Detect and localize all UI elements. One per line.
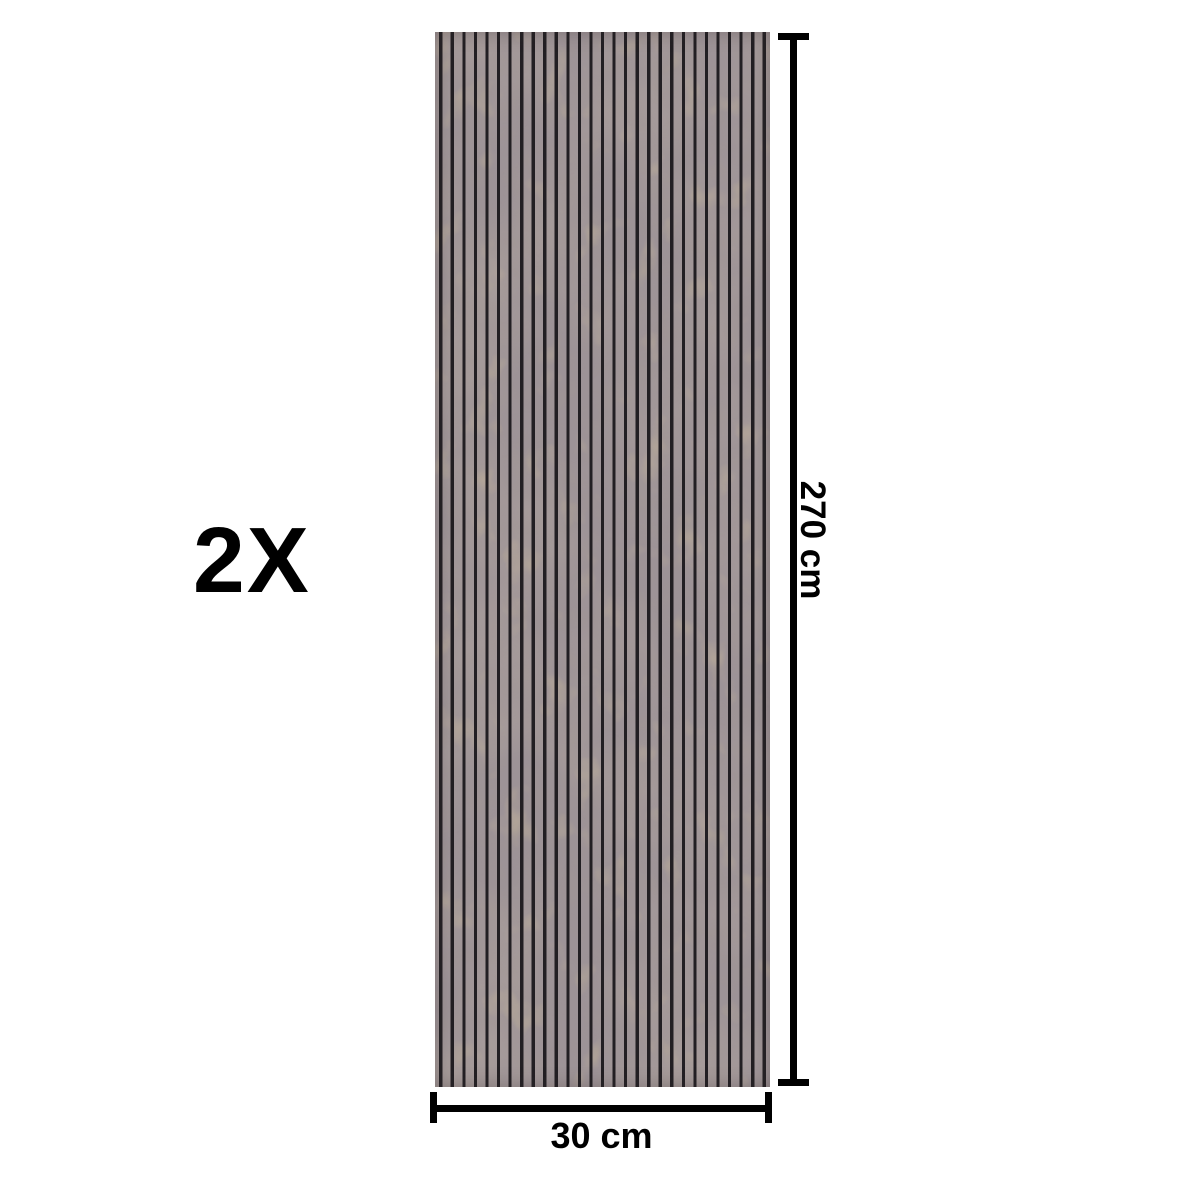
height-dimension-label: 270 cm [792,481,832,600]
height-dimension-cap-top [778,33,809,40]
panel-edge-shading [435,32,770,1087]
width-dimension-label: 30 cm [433,1115,770,1157]
slat-panel-image [435,32,770,1087]
quantity-label: 2X [193,514,311,607]
height-dimension-cap-bottom [778,1079,809,1086]
product-figure: 2X [0,0,1200,1200]
width-dimension-line [433,1105,770,1112]
